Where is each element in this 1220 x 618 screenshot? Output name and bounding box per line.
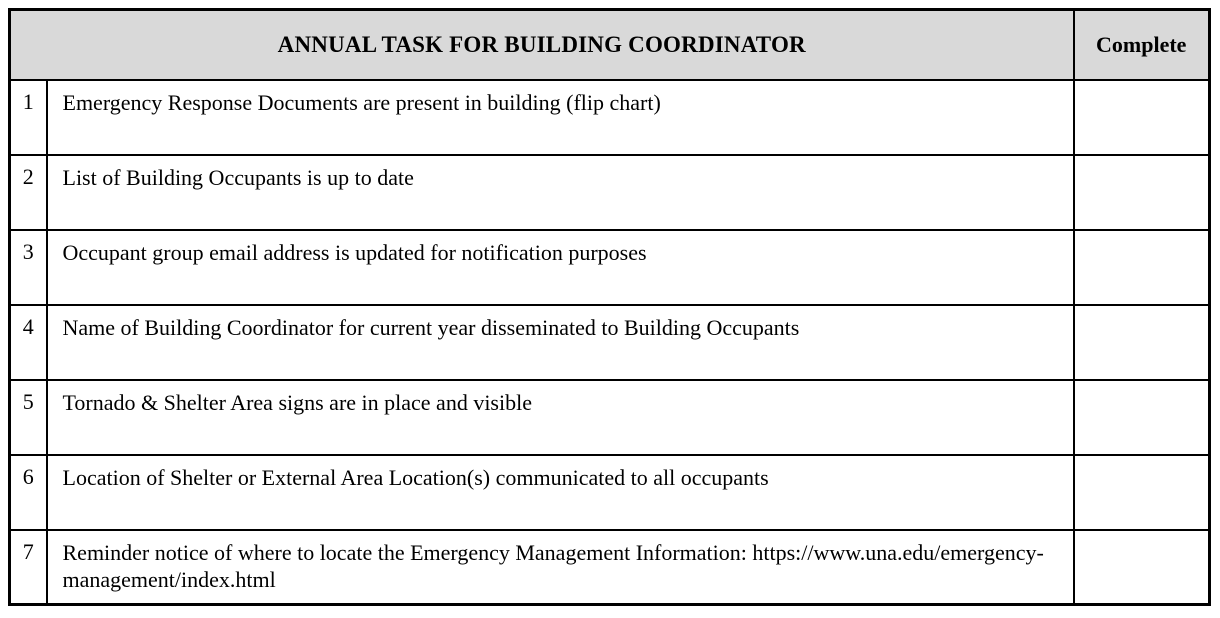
row-number: 4 — [10, 305, 47, 380]
table-row: 2 List of Building Occupants is up to da… — [10, 155, 1210, 230]
complete-column-header: Complete — [1074, 10, 1210, 80]
row-number: 3 — [10, 230, 47, 305]
task-text: Emergency Response Documents are present… — [47, 80, 1074, 155]
table-header-row: ANNUAL TASK FOR BUILDING COORDINATOR Com… — [10, 10, 1210, 80]
row-number: 2 — [10, 155, 47, 230]
complete-cell[interactable] — [1074, 80, 1210, 155]
row-number: 6 — [10, 455, 47, 530]
table-row: 5 Tornado & Shelter Area signs are in pl… — [10, 380, 1210, 455]
table-row: 6 Location of Shelter or External Area L… — [10, 455, 1210, 530]
task-text: Occupant group email address is updated … — [47, 230, 1074, 305]
document-page: ANNUAL TASK FOR BUILDING COORDINATOR Com… — [0, 0, 1220, 618]
complete-cell[interactable] — [1074, 230, 1210, 305]
complete-cell[interactable] — [1074, 155, 1210, 230]
table-row: 3 Occupant group email address is update… — [10, 230, 1210, 305]
task-text: Name of Building Coordinator for current… — [47, 305, 1074, 380]
complete-cell[interactable] — [1074, 455, 1210, 530]
task-text: List of Building Occupants is up to date — [47, 155, 1074, 230]
row-number: 7 — [10, 530, 47, 605]
table-row: 1 Emergency Response Documents are prese… — [10, 80, 1210, 155]
complete-cell[interactable] — [1074, 380, 1210, 455]
task-text: Location of Shelter or External Area Loc… — [47, 455, 1074, 530]
table-title: ANNUAL TASK FOR BUILDING COORDINATOR — [10, 10, 1074, 80]
task-text: Reminder notice of where to locate the E… — [47, 530, 1074, 605]
table-row: 4 Name of Building Coordinator for curre… — [10, 305, 1210, 380]
annual-task-table: ANNUAL TASK FOR BUILDING COORDINATOR Com… — [8, 8, 1211, 606]
complete-cell[interactable] — [1074, 530, 1210, 605]
row-number: 1 — [10, 80, 47, 155]
task-text: Tornado & Shelter Area signs are in plac… — [47, 380, 1074, 455]
row-number: 5 — [10, 380, 47, 455]
table-row: 7 Reminder notice of where to locate the… — [10, 530, 1210, 605]
complete-cell[interactable] — [1074, 305, 1210, 380]
